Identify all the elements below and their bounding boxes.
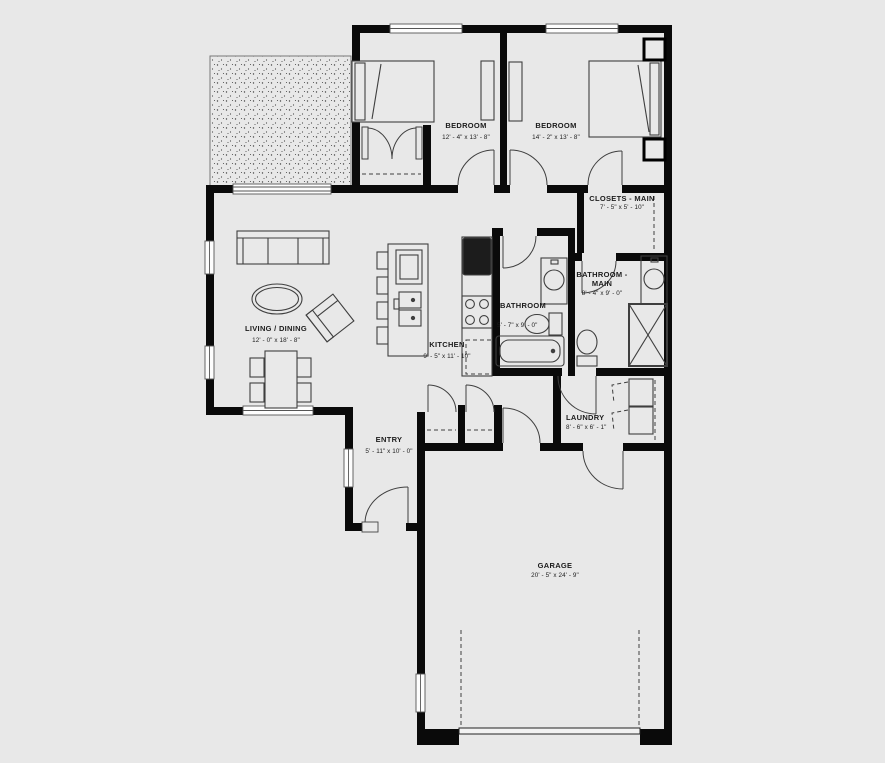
room-label-bedroom-2: BEDROOM 14' - 2" x 13' - 8" — [532, 121, 580, 141]
room-name: CLOSETS - MAIN — [589, 194, 654, 203]
refrigerator — [463, 238, 491, 275]
garage-door — [459, 728, 640, 734]
room-label-garage: GARAGE 20' - 5" x 24' - 9" — [531, 561, 579, 579]
front-door — [362, 487, 408, 532]
nightstand-2 — [644, 139, 665, 160]
room-name: BEDROOM — [442, 121, 490, 130]
bedroom1-bed — [352, 61, 434, 122]
living-window-2 — [205, 346, 214, 379]
dining-table-set — [250, 351, 311, 408]
bathroom-main-vanity — [641, 256, 667, 304]
coffee-table — [252, 284, 302, 314]
room-label-bathroom: BATHROOM — [500, 301, 546, 310]
bathtub — [496, 336, 564, 366]
room-label-laundry: LAUNDRY 8' - 6" x 6' - 1" — [566, 413, 606, 431]
room-name: GARAGE — [531, 561, 579, 570]
bathroom-main-toilet — [577, 330, 597, 366]
bathroom-vanity — [541, 258, 567, 304]
room-name: BATHROOM - MAIN — [572, 270, 632, 289]
garage-rear-door — [583, 451, 623, 489]
bedroom2-door — [510, 150, 547, 185]
dryer-door-swing — [612, 410, 628, 431]
bedroom1-door — [458, 150, 494, 185]
bedroom2-bed — [589, 61, 661, 137]
bedroom1-dresser — [481, 61, 494, 120]
hall-closet-door-1 — [428, 385, 456, 412]
room-name: BATHROOM — [500, 301, 546, 310]
bedroom1-closet-doors — [362, 127, 422, 159]
room-dims: 8' - 4" x 9' - 0" — [572, 290, 632, 297]
dryer — [629, 407, 653, 434]
bedroom2-window — [546, 24, 618, 33]
room-dims: 5' - 7" x 9' - 0" — [497, 322, 537, 329]
room-dims: 14' - 2" x 13' - 8" — [532, 134, 580, 141]
stove — [462, 296, 492, 328]
bathroom-door — [503, 236, 536, 268]
room-dims: 7' - 5" x 5' - 10" — [589, 204, 654, 211]
hall-closet-door-2 — [466, 385, 494, 412]
shower — [629, 304, 667, 366]
garage-window — [416, 674, 425, 712]
room-label-closets-main: CLOSETS - MAIN 7' - 5" x 5' - 10" — [589, 194, 654, 211]
room-name: BEDROOM — [532, 121, 580, 130]
kitchen-island — [377, 244, 428, 356]
room-dims-bathroom: 5' - 7" x 9' - 0" — [497, 322, 537, 329]
room-label-bedroom-1: BEDROOM 12' - 4" x 13' - 8" — [442, 121, 490, 141]
room-name: LAUNDRY — [566, 413, 606, 422]
patio-slider — [233, 184, 331, 194]
room-dims: 12' - 4" x 13' - 8" — [442, 134, 490, 141]
room-name: ENTRY — [365, 435, 412, 444]
nightstand-1 — [644, 39, 665, 60]
deck — [210, 56, 351, 187]
room-name: LIVING / DINING — [245, 324, 307, 333]
laundry-door — [558, 376, 596, 414]
room-label-bathroom-main: BATHROOM - MAIN 8' - 4" x 9' - 0" — [572, 270, 632, 297]
washer-door-swing — [612, 382, 628, 403]
room-dims: 20' - 5" x 24' - 9" — [531, 572, 579, 579]
floor-plan: LIVING / DINING 12' - 0" x 18' - 8" KITC… — [0, 0, 885, 763]
room-label-living-dining: LIVING / DINING 12' - 0" x 18' - 8" — [245, 324, 307, 344]
room-dims: 9' - 5" x 11' - 10" — [423, 353, 470, 360]
room-label-entry: ENTRY 5' - 11" x 10' - 0" — [365, 435, 412, 455]
washer — [629, 379, 653, 406]
room-dims: 12' - 0" x 18' - 8" — [245, 337, 307, 344]
room-name: KITCHEN — [423, 340, 470, 349]
living-window-1 — [205, 241, 214, 274]
room-dims: 5' - 11" x 10' - 0" — [365, 448, 412, 455]
bedroom2-dresser — [509, 62, 522, 121]
floor-plan-drawing — [0, 0, 885, 763]
bedroom2-closet-door — [588, 151, 622, 185]
room-dims: 8' - 6" x 6' - 1" — [566, 424, 606, 431]
armchair — [306, 294, 354, 342]
room-label-kitchen: KITCHEN 9' - 5" x 11' - 10" — [423, 340, 470, 360]
entry-window — [344, 449, 353, 487]
garage-hall-door — [503, 408, 540, 443]
bedroom1-window — [390, 24, 462, 33]
sofa — [237, 231, 329, 264]
